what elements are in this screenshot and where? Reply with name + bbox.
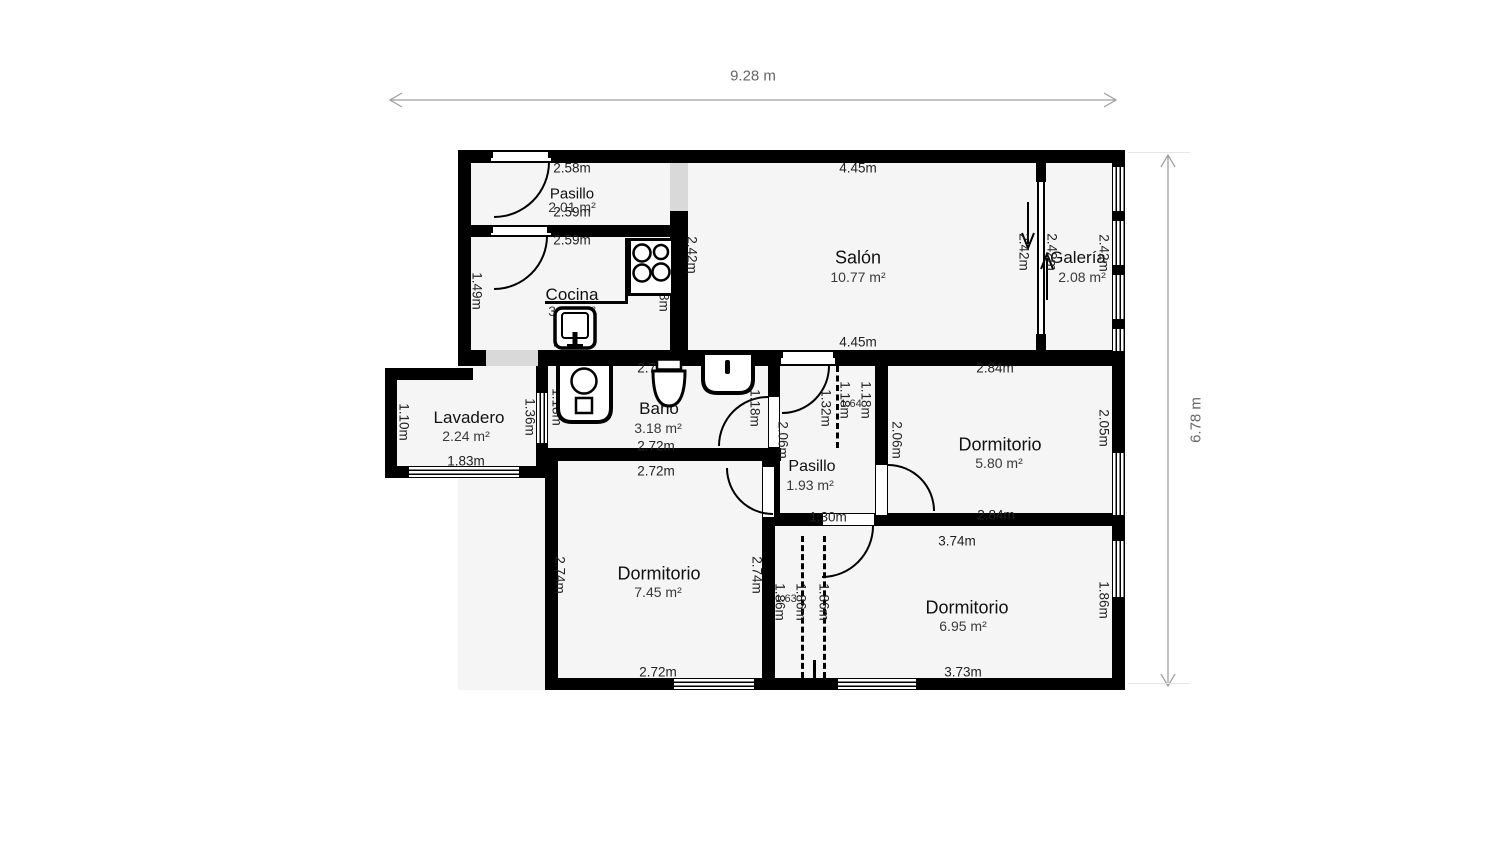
room-area: 2.24 m² [442,428,489,444]
dimension-label: 2.59m [553,233,591,248]
overall-height-label: 6.78 m [1188,397,1205,443]
washbasin-icon [556,366,613,424]
door-hinge [548,150,555,158]
wall [385,368,473,380]
room-area: 5.80 m² [975,455,1022,471]
room-name: Pasillo [788,458,835,476]
dimension-extension-line [1128,683,1190,684]
dimension-label: 2.42m [685,236,700,274]
door-panel [875,464,888,516]
window [1112,166,1125,212]
dimension-label: 1.49m [470,272,485,310]
door-hinge [486,225,493,233]
wall-stub [813,660,816,678]
window [1112,540,1125,598]
room-area: 7.45 m² [634,584,681,600]
room-area: 3.18 m² [634,420,681,436]
window [837,678,917,690]
window [1112,220,1125,266]
room-name: Dormitorio [958,435,1041,456]
dimension-label: 1.86m [1097,581,1112,619]
dimension-label: 1.86m [817,583,832,621]
wall [1036,334,1046,366]
toilet-icon [649,358,689,408]
room-area: 6.95 m² [939,618,986,634]
window [1112,328,1125,352]
stove-icon [628,238,674,296]
window [673,678,755,690]
overall-width-label: 9.28 m [730,68,776,85]
dimension-label: 2.72m [637,464,675,479]
room-name: Cocina [546,285,599,305]
room-area: 1.93 m² [786,477,833,493]
window [1112,452,1125,516]
dimension-label: 3.73m [944,665,982,680]
wall [545,678,1125,690]
dimension-label: 1.10m [397,403,412,441]
dimension-label: 1.86m [794,583,809,621]
room-name: Dormitorio [617,564,700,585]
wall-opening [486,350,538,366]
kitchen-sink-icon [553,306,597,350]
dimension-label: 1.18m [859,381,874,419]
dimension-label: 2.42m [1097,234,1112,272]
wall [536,366,548,392]
dimension-label: 2.06m [776,421,791,459]
width-dimension-line [383,88,1123,112]
dimension-label: 1.36m [523,398,538,436]
dimension-label: 1.32m [819,389,834,427]
window [536,392,548,444]
room-name: Dormitorio [925,598,1008,619]
wall [385,368,397,478]
bidet-icon [701,355,755,395]
room-area: 10.77 m² [830,269,885,285]
door-panel [780,351,836,365]
wall-opening [670,163,688,211]
dimension-label: 4.45m [839,335,877,350]
floor-plan-canvas: Pasillo 2.01 m² Cocina 3.84 m² Salón 10.… [0,0,1500,844]
dimension-label: 2.58m [553,161,591,176]
dimension-label: 2.42m [1017,233,1032,271]
dimension-label: 2.42m [1045,233,1060,271]
door-hinge [486,150,493,158]
dimension-label: 2.06m [890,421,905,459]
dimension-label: 2.84m [976,361,1014,376]
dimension-label: 1.83m [447,454,485,469]
dimension-label: 2.05m [1097,409,1112,447]
wall [768,366,780,396]
door-hinge [833,351,839,358]
dimension-label: 2.59m [553,205,591,220]
door-panel [490,151,552,162]
dimension-label: 2.74m [750,556,765,594]
room-name: Salón [835,248,881,269]
room-name: Lavadero [434,408,505,428]
wall [1036,150,1046,182]
dimension-label: 3.74m [938,534,976,549]
dimension-label: 1.86m [773,583,788,621]
dimension-label: 2.84m [977,508,1015,523]
door-hinge [777,351,783,358]
wall [875,366,888,464]
dimension-label: 1.30m [809,510,847,525]
dimension-extension-line [1128,152,1190,153]
dimension-label: 2.72m [637,439,675,454]
wall [762,448,775,466]
door-panel [490,226,552,236]
dimension-label: 1.18m [838,381,853,419]
dimension-label: 4.45m [839,161,877,176]
dimension-label: 2.72m [639,665,677,680]
height-dimension-line [1156,148,1180,693]
dimension-label: 2.74m [553,556,568,594]
window [1112,274,1125,320]
wall [458,150,471,366]
